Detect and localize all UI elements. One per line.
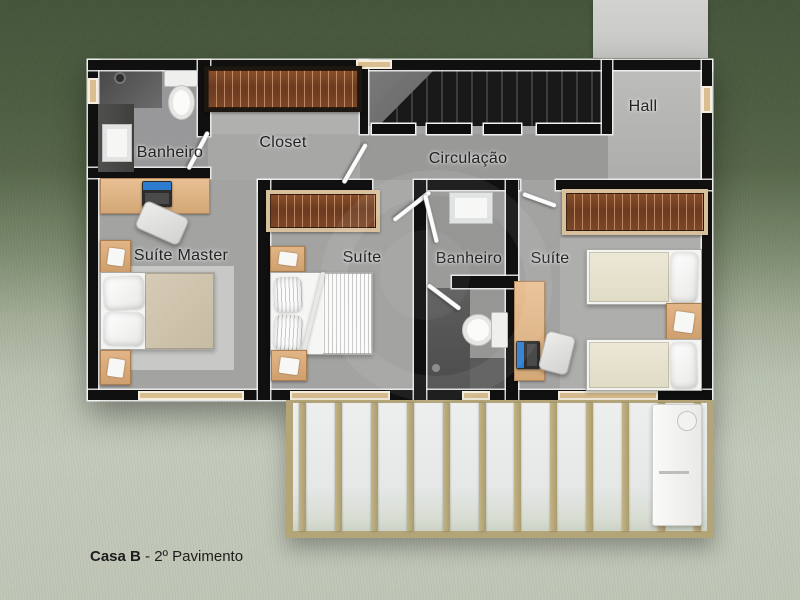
window xyxy=(138,391,244,400)
laptop-screen xyxy=(143,182,171,190)
room-label-closet: Closet xyxy=(259,134,306,152)
wall xyxy=(258,180,372,190)
window xyxy=(462,391,490,400)
duvet xyxy=(145,273,214,349)
lamp xyxy=(106,247,124,266)
single-bed xyxy=(586,339,702,391)
pergola-roof xyxy=(286,400,714,538)
stair-railing xyxy=(537,124,606,134)
sink xyxy=(102,124,132,162)
wall xyxy=(452,276,518,288)
pergola-beam xyxy=(586,403,593,531)
room-label-circulacao: Circulação xyxy=(429,150,508,168)
room-label-suite-middle: Suíte xyxy=(343,249,382,267)
pillow xyxy=(103,311,144,345)
papers xyxy=(106,357,124,377)
vent-handle xyxy=(659,471,689,474)
hall-floor xyxy=(608,70,702,182)
pillow xyxy=(273,314,303,350)
plan-caption-floor: - 2º Pavimento xyxy=(141,548,243,565)
master-shower-area xyxy=(98,70,162,108)
double-bed xyxy=(270,272,373,355)
window xyxy=(88,78,98,104)
vent-unit xyxy=(652,404,702,526)
pillow xyxy=(669,252,699,303)
laptop xyxy=(516,341,540,369)
window xyxy=(702,86,712,113)
shower-head xyxy=(116,74,124,82)
house-floor-plan: Banheiro Closet Hall Circulação Suíte Ma… xyxy=(88,60,712,400)
nightstand xyxy=(100,350,131,385)
floor-plan-scene: Banheiro Closet Hall Circulação Suíte Ma… xyxy=(0,0,800,600)
pergola-beam xyxy=(299,403,306,531)
pillow xyxy=(103,275,145,310)
duvet xyxy=(589,252,669,302)
pergola-beam xyxy=(443,403,450,531)
plan-caption-name: Casa B xyxy=(90,548,141,565)
nightstand xyxy=(666,303,702,341)
wall xyxy=(88,60,98,400)
double-bed xyxy=(100,272,215,350)
sink xyxy=(449,192,493,224)
middle-shower-floor xyxy=(470,358,506,390)
stair-railing xyxy=(427,124,471,134)
window xyxy=(290,391,390,400)
wardrobe xyxy=(204,66,362,112)
toilet xyxy=(168,85,195,120)
nightstand xyxy=(271,350,307,381)
room-label-banheiro-master: Banheiro xyxy=(137,144,203,162)
plan-caption: Casa B - 2º Pavimento xyxy=(90,548,243,565)
wall xyxy=(88,60,712,70)
stair-railing xyxy=(372,124,415,134)
stair-railing xyxy=(484,124,521,134)
room-label-banheiro-middle: Banheiro xyxy=(436,250,502,268)
room-label-hall: Hall xyxy=(629,98,658,116)
pergola-beam xyxy=(335,403,342,531)
room-label-suite-master: Suíte Master xyxy=(134,247,228,265)
pergola-beam xyxy=(479,403,486,531)
papers xyxy=(279,356,300,374)
nightstand xyxy=(100,240,131,273)
pergola-beam xyxy=(550,403,557,531)
shower-head xyxy=(432,364,440,372)
wall xyxy=(602,60,612,134)
duvet xyxy=(321,273,372,354)
room-label-suite-right: Suíte xyxy=(531,250,570,268)
pergola-beam xyxy=(407,403,414,531)
wardrobe xyxy=(266,190,380,232)
laptop-keyboard xyxy=(527,344,537,366)
pergola-beam xyxy=(514,403,521,531)
wall xyxy=(414,180,426,400)
window xyxy=(558,391,658,400)
toilet xyxy=(491,312,508,348)
wardrobe xyxy=(562,189,708,235)
pillow xyxy=(273,277,302,313)
vent-cap xyxy=(677,411,697,431)
pergola-beam xyxy=(622,403,629,531)
single-bed xyxy=(586,249,702,305)
lamp xyxy=(673,311,694,333)
nightstand xyxy=(270,246,305,272)
pergola-beam xyxy=(371,403,378,531)
pillow xyxy=(669,342,698,389)
duvet xyxy=(589,342,669,388)
lamp xyxy=(278,251,298,267)
laptop-screen xyxy=(517,342,524,368)
concrete-path xyxy=(593,0,708,58)
toilet xyxy=(462,314,494,346)
